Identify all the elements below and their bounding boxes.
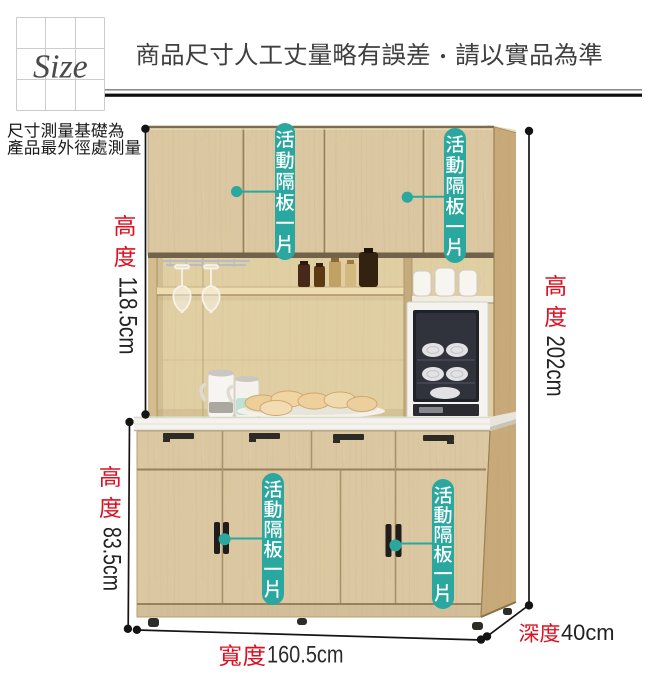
svg-text:40cm: 40cm xyxy=(561,620,615,645)
svg-text:Size: Size xyxy=(33,49,88,86)
svg-text:202cm: 202cm xyxy=(541,336,569,397)
svg-text:160.5cm: 160.5cm xyxy=(267,642,344,669)
svg-text:118.5cm: 118.5cm xyxy=(114,277,142,355)
svg-text:83.5cm: 83.5cm xyxy=(98,527,126,591)
